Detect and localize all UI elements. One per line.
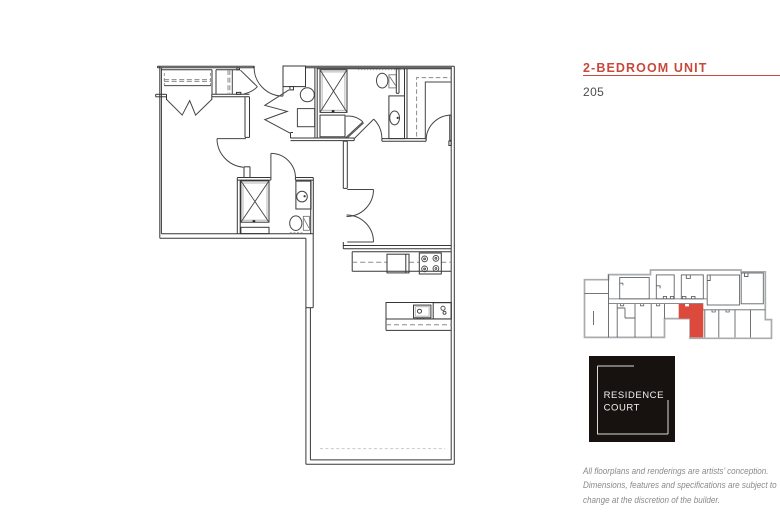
svg-text:COURT: COURT (604, 403, 640, 414)
svg-text:RESIDENCE: RESIDENCE (604, 390, 664, 401)
